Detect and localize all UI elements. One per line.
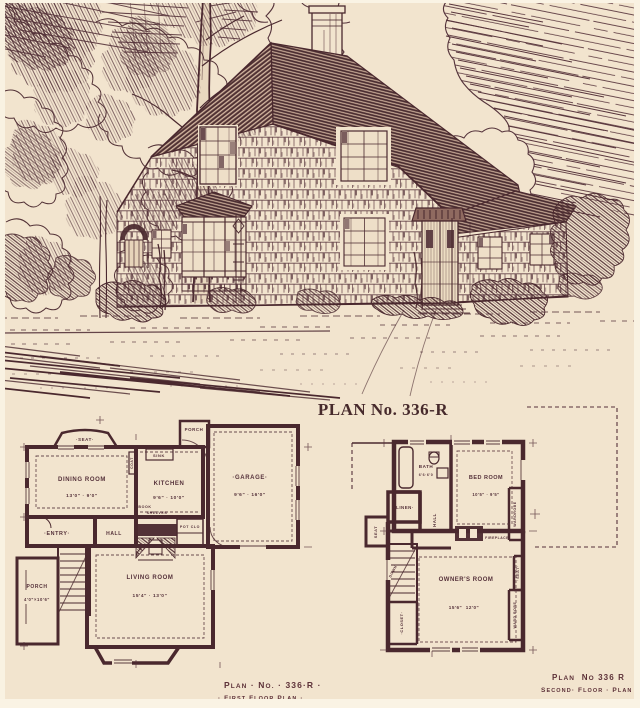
svg-text:PLAN NO 336 R: PLAN NO 336 R <box>552 673 625 682</box>
svg-text:PORCH: PORCH <box>26 584 47 590</box>
svg-text:SEAT: SEAT <box>373 526 378 538</box>
svg-text:·CLOSET·: ·CLOSET· <box>399 612 404 635</box>
svg-text:POT CLO: POT CLO <box>180 525 200 529</box>
svg-text:13'0" · 9'0": 13'0" · 9'0" <box>66 493 98 499</box>
svg-text:·SEAT·: ·SEAT· <box>76 437 94 442</box>
svg-text:HALL: HALL <box>432 513 437 527</box>
svg-text:SINK: SINK <box>153 453 165 458</box>
svg-text:15'4" · 13'0": 15'4" · 13'0" <box>133 593 168 599</box>
svg-text:6'6·6'0: 6'6·6'0 <box>419 473 433 477</box>
svg-text:COAT: COAT <box>130 457 134 469</box>
svg-text:·ENTRY·: ·ENTRY· <box>44 531 70 537</box>
svg-text:FIREPLACE: FIREPLACE <box>485 536 509 540</box>
svg-text:BATH: BATH <box>419 464 434 469</box>
svg-text:OWNER'S ROOM: OWNER'S ROOM <box>439 577 494 583</box>
svg-text:9'6" · 16'0": 9'6" · 16'0" <box>234 492 266 498</box>
svg-text:DOOR: DOOR <box>163 533 176 537</box>
svg-text:PORCH: PORCH <box>185 427 204 432</box>
svg-text:SHELVES: SHELVES <box>147 511 168 515</box>
svg-text:BOOK: BOOK <box>138 505 151 509</box>
svg-text:DINING ROOM: DINING ROOM <box>58 477 106 483</box>
svg-text:SECOND· FLOOR · PLAN: SECOND· FLOOR · PLAN <box>541 687 632 694</box>
svg-text:HALL: HALL <box>106 531 122 537</box>
svg-text:15'6" 12'0": 15'6" 12'0" <box>449 605 479 610</box>
svg-text:BED ROOM: BED ROOM <box>469 475 503 481</box>
svg-text:KITCHEN: KITCHEN <box>154 481 185 487</box>
svg-text:4'0"×10'6": 4'0"×10'6" <box>24 597 50 602</box>
svg-text:WARD ROBE: WARD ROBE <box>513 601 517 628</box>
svg-text:10'5" · 9'5": 10'5" · 9'5" <box>472 492 499 497</box>
svg-text:·SEAT·: ·SEAT· <box>516 565 520 580</box>
svg-text:PLAN No. 336-R: PLAN No. 336-R <box>318 400 448 419</box>
svg-text:LIVING ROOM: LIVING ROOM <box>127 575 174 581</box>
svg-text:·GARAGE·: ·GARAGE· <box>232 475 267 481</box>
svg-text:·LINEN·: ·LINEN· <box>394 505 414 510</box>
svg-text:9'6" · 10'0": 9'6" · 10'0" <box>153 495 185 501</box>
svg-text:WARDROBE: WARDROBE <box>513 501 517 526</box>
